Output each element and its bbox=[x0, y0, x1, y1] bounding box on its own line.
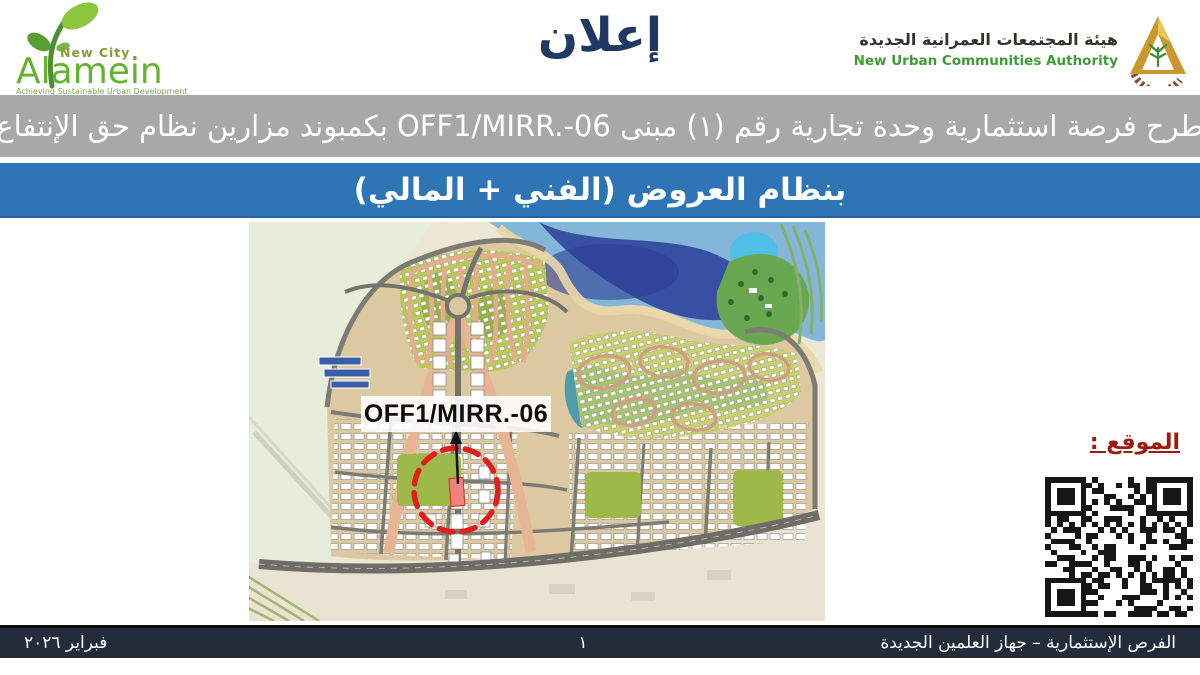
alamein-logo-tagline: Achieving Sustainable Urban Development bbox=[16, 87, 188, 95]
nuca-pyramid-icon bbox=[1126, 12, 1190, 86]
roundabout bbox=[447, 295, 469, 317]
gray-banner-text: طرح فرصة استثمارية وحدة تجارية رقم (١) م… bbox=[0, 109, 1200, 143]
nuca-logo: هيئة المجتمعات العمرانية الجديدة New Urb… bbox=[854, 12, 1190, 86]
nuca-name-arabic: هيئة المجتمعات العمرانية الجديدة bbox=[854, 30, 1118, 49]
footer: فبراير ٢٠٢٦ ١ الفرص الإستثمارية – جهاز ا… bbox=[0, 625, 1200, 658]
gray-banner: طرح فرصة استثمارية وحدة تجارية رقم (١) م… bbox=[0, 95, 1200, 157]
location-label: الموقع : bbox=[1040, 430, 1180, 455]
unit-label: OFF1/MIRR.-06 bbox=[361, 396, 551, 432]
footer-department: الفرص الإستثمارية – جهاز العلمين الجديدة bbox=[880, 633, 1176, 653]
blue-banner: بنظام العروض (الفني + المالي) bbox=[0, 163, 1200, 218]
header: New City Alamein Achieving Sustainable U… bbox=[0, 0, 1200, 95]
masterplan-map: OFF1/MIRR.-06 bbox=[249, 222, 825, 621]
blue-banner-text: بنظام العروض (الفني + المالي) bbox=[354, 172, 847, 208]
nuca-name-english: New Urban Communities Authority bbox=[854, 53, 1118, 69]
qr-code bbox=[1045, 477, 1193, 617]
announcement-slide: New City Alamein Achieving Sustainable U… bbox=[0, 0, 1200, 675]
